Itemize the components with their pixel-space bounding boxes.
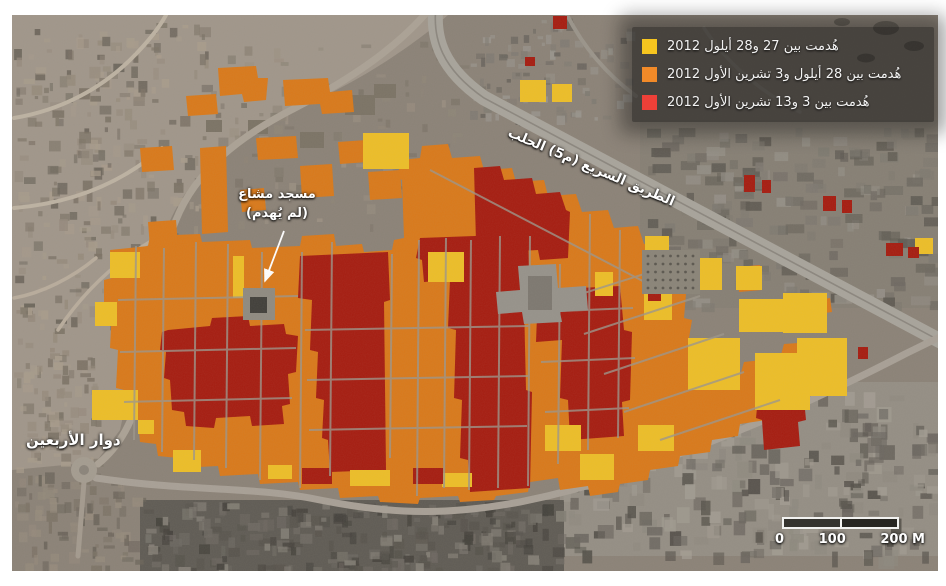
legend-item-sep27-28: هُدمت بين 27 و28 أيلول 2012 [642,35,924,57]
legend-label: هُدمت بين 28 أيلول و3 تشرين الأول 2012 [667,68,901,81]
report-figure: هُدمت بين 27 و28 أيلول 2012 هُدمت بين 28… [0,0,946,586]
legend-item-oct3-13: هُدمت بين 3 و13 تشرين الأول 2012 [642,91,924,113]
scale-bar-line [782,517,899,529]
legend-label: هُدمت بين 3 و13 تشرين الأول 2012 [667,96,870,109]
mosque-label-line2: (لم يُهدم) [215,205,339,224]
legend-swatch-red [642,95,657,110]
legend-swatch-orange [642,67,657,82]
legend-label: هُدمت بين 27 و28 أيلول 2012 [667,40,839,53]
legend-item-sep28-oct3: هُدمت بين 28 أيلول و3 تشرين الأول 2012 [642,63,924,85]
scale-bar: 0 100 200 M [775,517,925,547]
scale-tick-100: 100 [819,532,846,547]
mosque-label: مسجد مشاع (لم يُهدم) [215,186,339,224]
scale-tick-200: 200 M [880,532,925,547]
scale-bar-segment-1 [784,519,840,527]
mosque-label-line1: مسجد مشاع [215,186,339,205]
roundabout-label: دوار الأربعين [26,431,121,449]
scale-bar-segment-2 [842,519,898,527]
legend: هُدمت بين 27 و28 أيلول 2012 هُدمت بين 28… [632,27,934,122]
legend-swatch-yellow [642,39,657,54]
scale-bar-labels: 0 100 200 M [775,532,925,547]
scale-tick-0: 0 [775,532,784,547]
